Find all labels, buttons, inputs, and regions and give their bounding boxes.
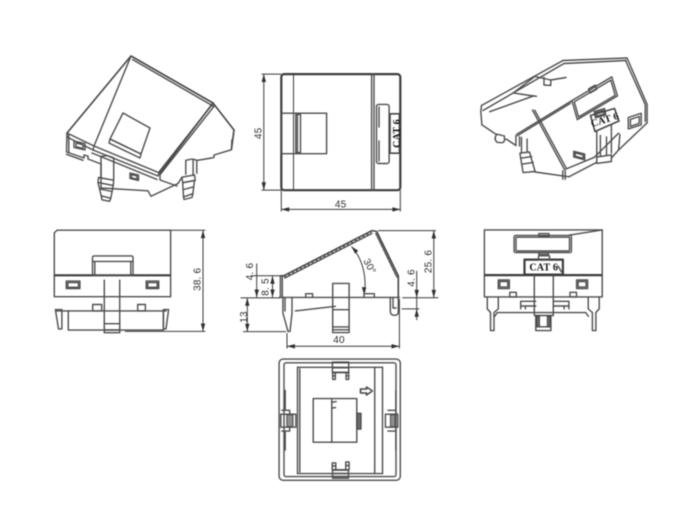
svg-text:CAT 6: CAT 6 [392, 119, 403, 148]
svg-text:CAT 6: CAT 6 [529, 263, 558, 274]
svg-text:45: 45 [253, 127, 264, 139]
svg-text:38. 6: 38. 6 [193, 267, 204, 290]
svg-text:4. 6: 4. 6 [245, 263, 256, 281]
svg-text:4. 6: 4. 6 [407, 269, 418, 287]
svg-text:13: 13 [239, 311, 250, 323]
svg-text:45: 45 [335, 199, 347, 210]
svg-text:25. 6: 25. 6 [423, 250, 434, 273]
svg-text:8. 5: 8. 5 [261, 278, 272, 296]
svg-text:40: 40 [333, 335, 345, 346]
